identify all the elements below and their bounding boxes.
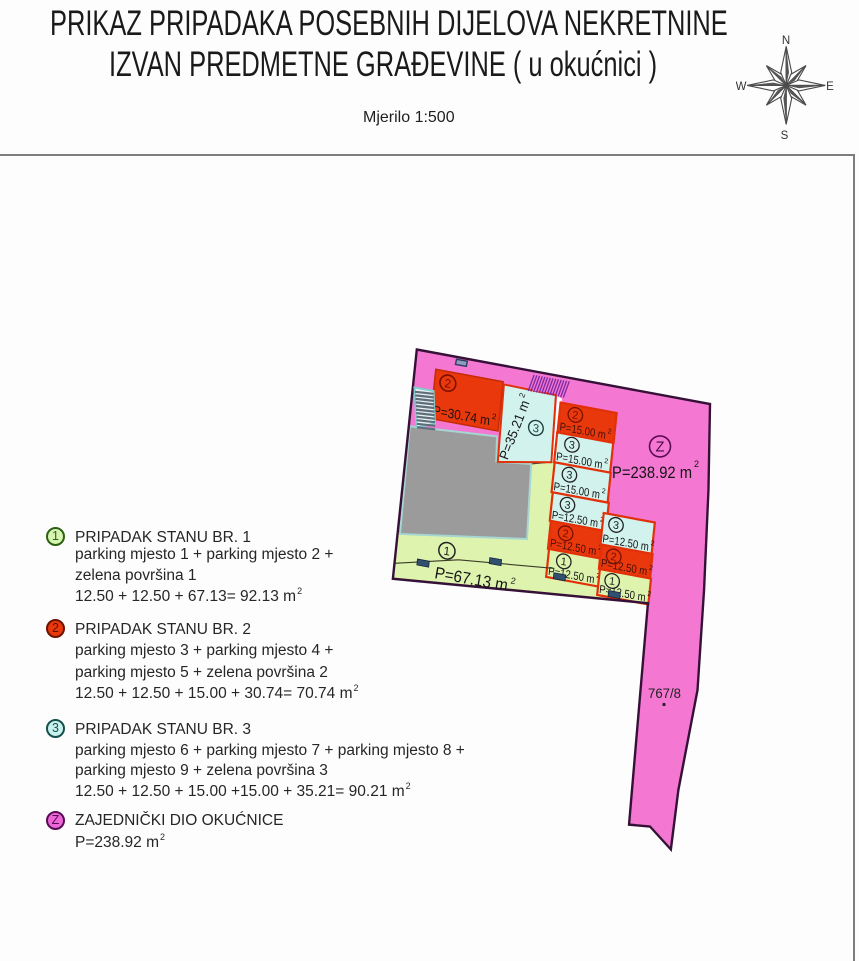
svg-text:2: 2 bbox=[604, 458, 609, 466]
svg-text:P=238.92 m: P=238.92 m bbox=[612, 464, 692, 482]
svg-text:2: 2 bbox=[562, 528, 569, 541]
svg-text:2: 2 bbox=[601, 488, 606, 496]
svg-text:3: 3 bbox=[612, 519, 619, 532]
svg-text:3: 3 bbox=[568, 439, 575, 452]
svg-text:767/8: 767/8 bbox=[648, 686, 681, 701]
svg-text:3: 3 bbox=[566, 469, 573, 482]
svg-text:1: 1 bbox=[560, 556, 567, 569]
svg-text:Z: Z bbox=[656, 440, 665, 456]
svg-text:3: 3 bbox=[564, 499, 571, 512]
svg-text:2: 2 bbox=[694, 459, 699, 469]
svg-text:3: 3 bbox=[532, 423, 540, 436]
svg-text:2: 2 bbox=[572, 409, 579, 422]
